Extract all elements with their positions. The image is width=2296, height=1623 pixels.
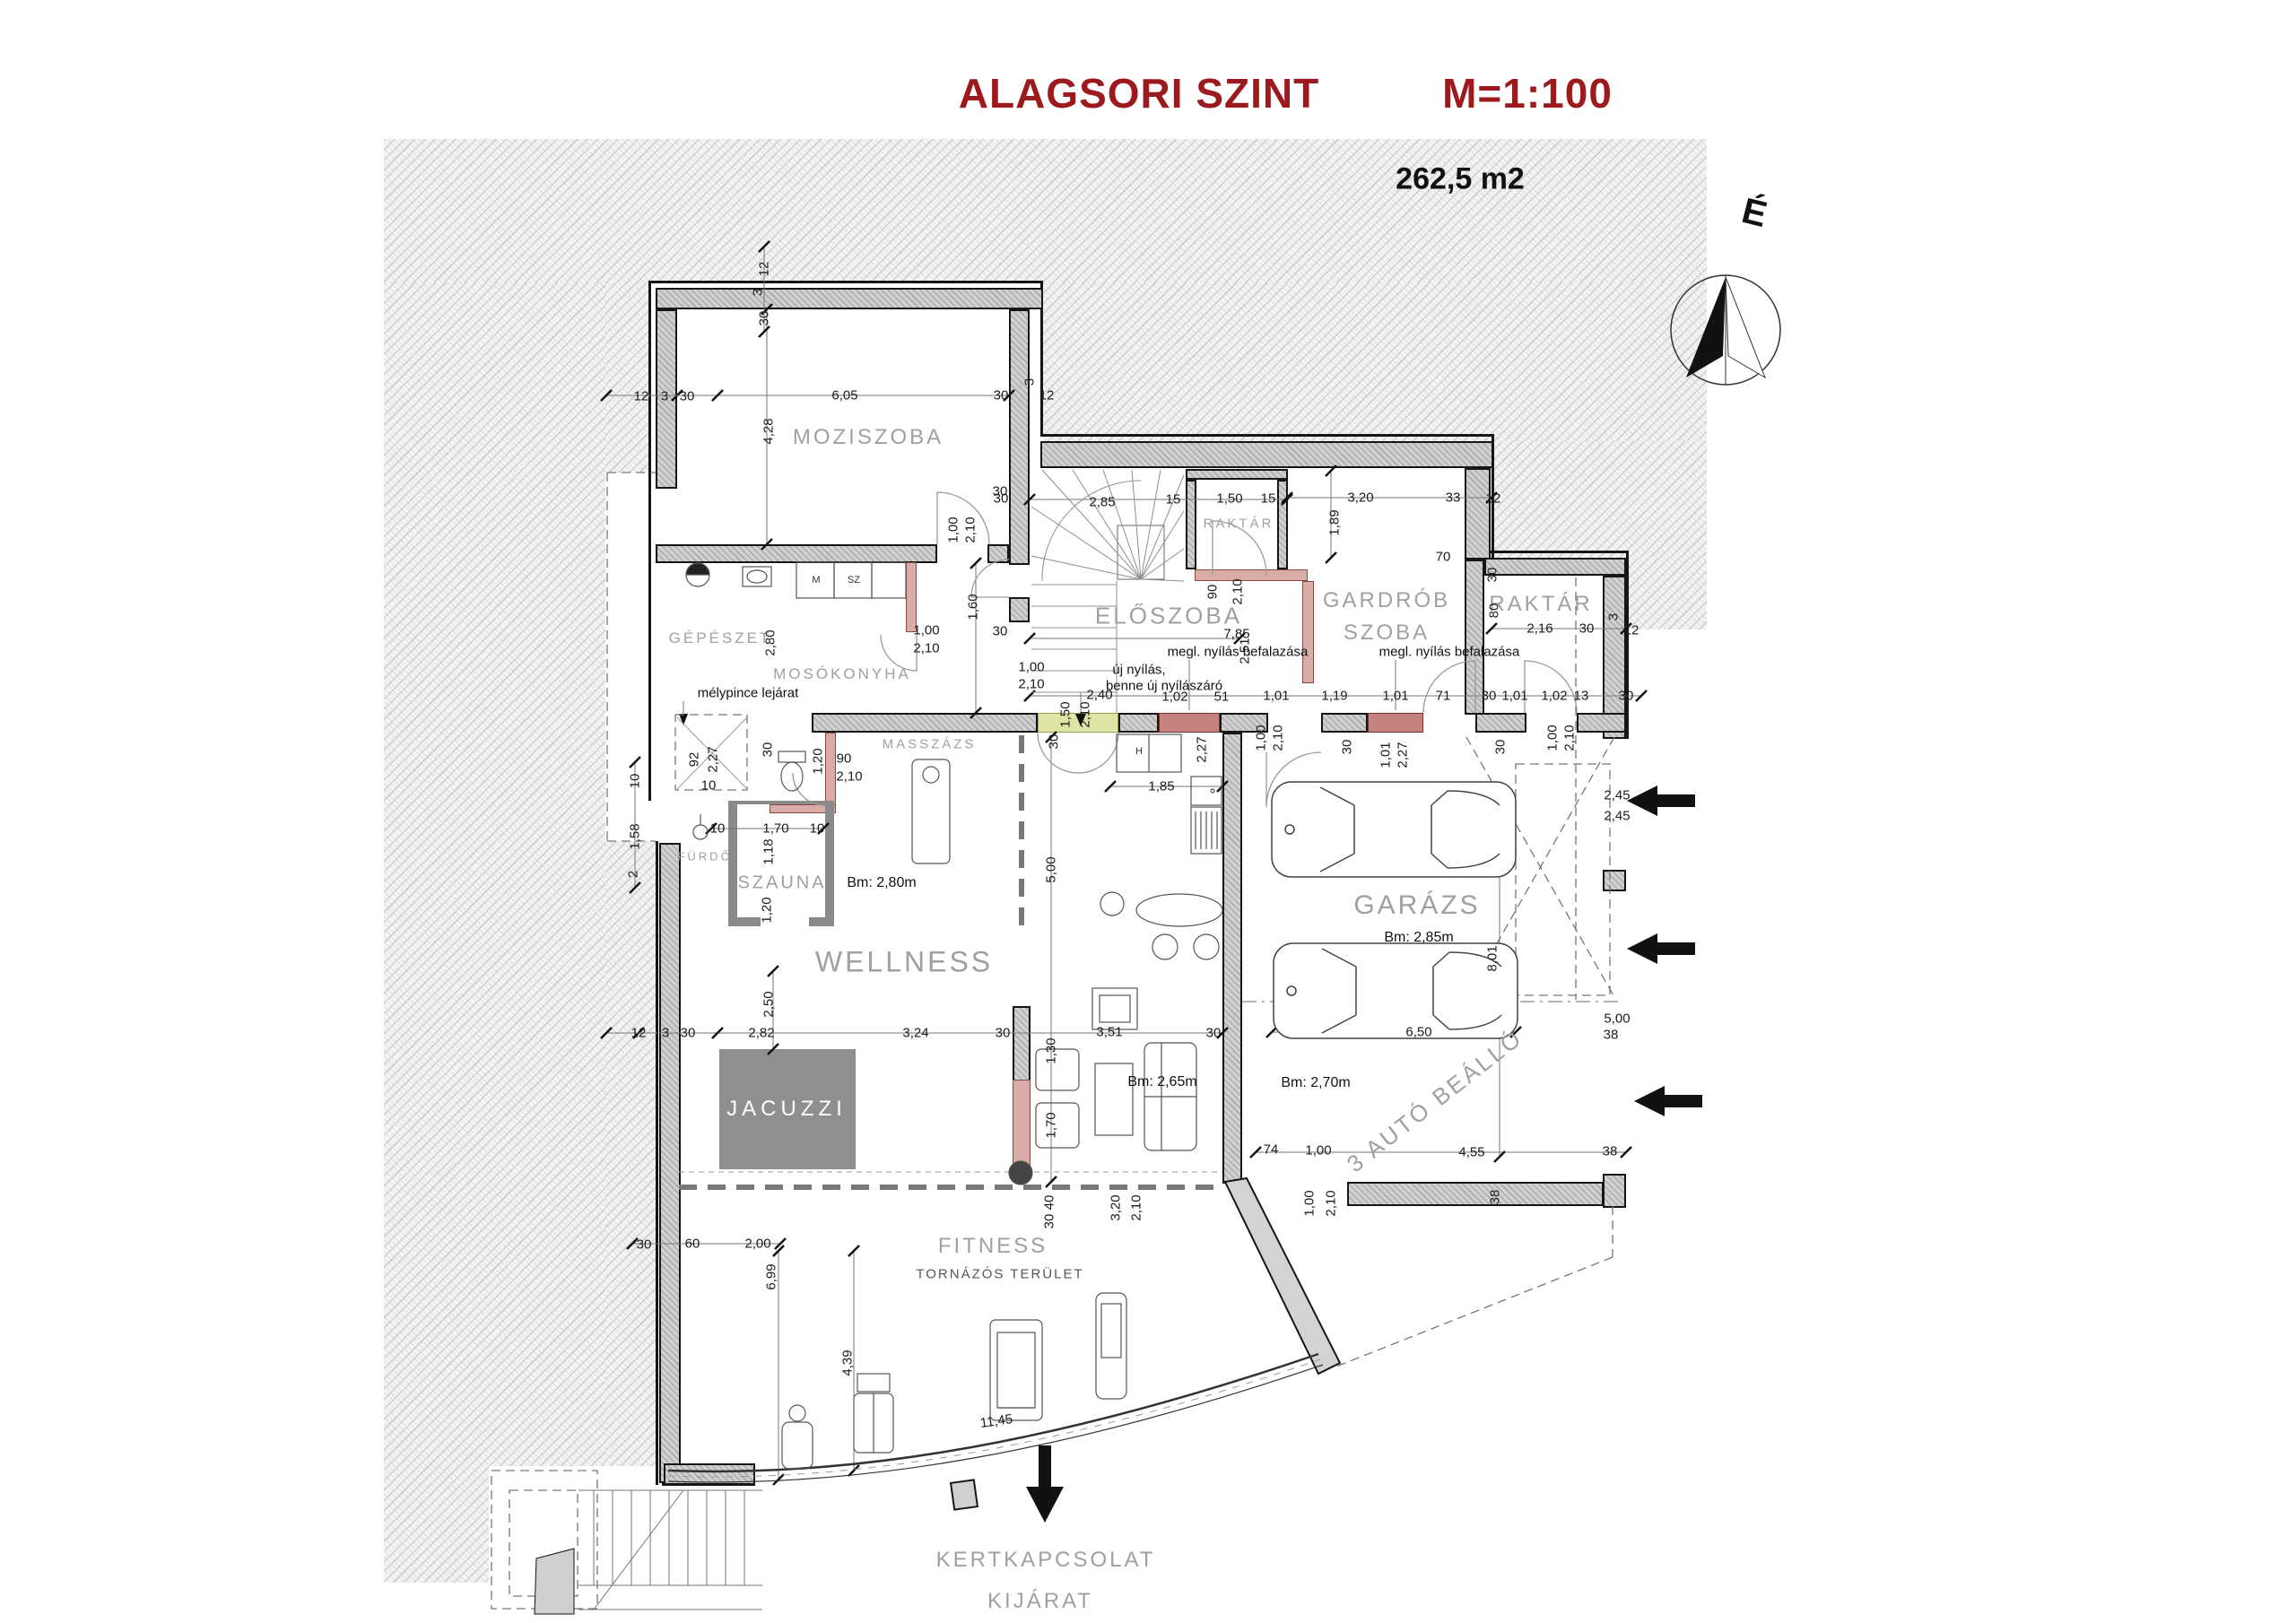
car-top-view [1274,943,1518,1038]
room-label-wellness: WELLNESS [815,946,993,979]
dim-label-1-00: 1,00 [1305,1143,1331,1159]
sm-label-sz: SZ [848,575,860,586]
dim-label-80: 80 [1487,603,1502,619]
dim-label-3-51: 3,51 [1096,1025,1122,1040]
dim-label-12: 12 [1486,491,1501,507]
dim-label-30: 30 [637,1237,652,1253]
dim-label-1-00: 1,00 [1018,660,1044,675]
floor-plan-canvas: ALAGSORI SZINTM=1:100262,5 m2ÉMOZISZOBAR… [0,0,2296,1623]
dim-label-2-10: 2,10 [836,769,862,785]
dim-label-12: 12 [1624,623,1639,638]
dim-label-1-19: 1,19 [1321,689,1347,704]
dim-label-90: 90 [1205,585,1221,600]
dim-label-15: 15 [1166,492,1181,508]
dim-label-40: 40 [1042,1195,1057,1211]
bm-label-bm-2-85m: Bm: 2,85m [1384,930,1453,946]
dim-label-2-45: 2,45 [1604,788,1630,803]
dim-label-8-01: 8,01 [1485,945,1500,971]
dim-label-10: 10 [701,778,717,794]
dim-label-10: 10 [628,774,643,789]
dim-label-6-05: 6,05 [831,388,857,404]
dim-label-15: 15 [1261,491,1276,507]
dim-label-33: 33 [1446,490,1461,506]
dim-label-30: 30 [757,311,772,326]
dim-label-2-10: 2,10 [1231,578,1246,604]
room-label-fitness: FITNESS [938,1234,1048,1259]
dim-label-1-01: 1,01 [1263,689,1289,704]
dim-label-12: 12 [634,389,649,404]
dim-label-1-01: 1,01 [1378,742,1394,768]
room-label-garázs: GARÁZS [1353,890,1480,921]
dim-label-30: 30 [761,742,776,758]
dim-label-30: 30 [1493,740,1509,755]
room-label-előszoba: ELŐSZOBA [1095,603,1242,630]
dim-label-2-85: 2,85 [1089,495,1115,510]
dim-label-2-27: 2,27 [1195,736,1210,762]
facade-column [951,1480,978,1509]
dim-label-12: 12 [757,262,772,277]
dim-label-1-58: 1,58 [628,823,643,849]
dim-label-2: 2 [626,871,641,878]
dim-label-2-27: 2,27 [1396,742,1411,768]
dim-label-3-24: 3,24 [902,1026,928,1041]
room-label-raktár: RAKTÁR [1489,592,1592,617]
dim-label-2-45: 2,45 [1604,809,1630,824]
room-label-kijárat: KIJÁRAT [987,1589,1093,1614]
dim-label-30: 30 [680,389,695,404]
dim-label-4-55: 4,55 [1458,1145,1484,1160]
entry-arrow-icon [1627,785,1695,816]
dim-label-30: 30 [1619,689,1634,704]
dim-label-3-20: 3,20 [1109,1194,1124,1220]
dim-label-2-10: 2,10 [963,516,978,542]
dim-label-1-02: 1,02 [1541,689,1567,704]
dim-label-2-50: 2,50 [761,991,777,1017]
dim-label-1-50: 1,50 [1216,491,1242,507]
bm-label-bm-2-65m: Bm: 2,65m [1127,1074,1196,1090]
dim-label-38: 38 [1488,1190,1503,1205]
dim-label-1-01: 1,01 [1382,689,1408,704]
dim-label-4-39: 4,39 [840,1350,856,1376]
dim-label-30: 30 [1042,1214,1057,1229]
dim-label-6-50: 6,50 [1405,1025,1431,1040]
sm-label-m: M [812,575,820,586]
dim-label-1-00: 1,00 [946,516,961,542]
dim-label-2-00: 2,00 [744,1237,770,1252]
dim-label-6-99: 6,99 [764,1263,779,1289]
dim-label-30: 30 [1485,568,1500,583]
room-label-moziszoba: MOZISZOBA [793,425,944,450]
dim-label-1-00: 1,00 [1254,725,1269,751]
dim-label-5-00: 5,00 [1044,856,1059,882]
bm-label-bm-2-70m: Bm: 2,70m [1281,1075,1350,1091]
dim-label-3-20: 3,20 [1347,490,1373,506]
dim-label-1-00: 1,00 [1302,1190,1318,1216]
dim-label-1-01: 1,01 [1501,689,1527,704]
dim-label-1-85: 1,85 [1148,779,1174,794]
dim-label-30: 30 [1579,621,1595,637]
dim-label-2-10: 2,10 [1129,1194,1144,1220]
rm2-label-tornázós-terület: TORNÁZÓS TERÜLET [916,1267,1083,1282]
dim-label-1-50: 1,50 [1058,701,1074,727]
dim-label-1-70: 1,70 [1044,1112,1059,1138]
dim-label-30: 30 [1482,689,1497,704]
dim-label-2-51: 2,51 [1238,638,1253,664]
north-compass-icon [1671,275,1780,385]
dim-label-1-00: 1,00 [913,623,939,638]
dim-label-12: 12 [631,1026,647,1041]
room-label-kertkapcsolat: KERTKAPCSOLAT [936,1548,1156,1573]
room-label-szauna: SZAUNA [737,873,826,894]
dim-label-13: 13 [1574,689,1589,704]
dim-label-70: 70 [1436,550,1451,565]
dim-label-1-20: 1,20 [811,748,826,774]
dim-label-38: 38 [1604,1028,1619,1043]
dim-label-1-89: 1,89 [1327,509,1343,535]
dim-label-1-20: 1,20 [760,897,775,923]
ttl-label-m-1-100: M=1:100 [1442,69,1613,117]
garden-exit-arrow-icon [1026,1445,1064,1523]
dim-label-3: 3 [1022,378,1038,386]
dim-label-60: 60 [685,1237,700,1252]
dim-label-1-02: 1,02 [1161,690,1187,705]
dim-label-12: 12 [1039,388,1055,404]
dim-label-30: 30 [996,1026,1011,1041]
dim-label-30: 30 [681,1026,696,1041]
dim-label-90: 90 [837,751,852,767]
dim-label-30: 30 [1047,734,1062,750]
dim-label-30: 30 [993,484,1008,499]
dim-label-1-70: 1,70 [762,821,788,837]
dim-label-71: 71 [1436,689,1451,704]
dim-label-1-60: 1,60 [966,594,981,620]
dim-label-2-10: 2,10 [1271,725,1286,751]
room-label-raktár: RAKTÁR [1204,516,1274,532]
dim-label-2-27: 2,27 [706,746,721,772]
dim-label-1-30: 1,30 [1044,1037,1059,1063]
dim-label-3: 3 [1606,613,1622,621]
dim-label-1-18: 1,18 [761,838,777,864]
glass-facade-curve [668,1354,1318,1471]
dim-label-30: 30 [994,388,1009,404]
dim-label-38: 38 [1603,1144,1618,1159]
entry-arrow-icon [1627,933,1695,964]
room-label-gépészet: GÉPÉSZET [669,629,772,647]
dim-label-74: 74 [1264,1142,1279,1158]
dim-label-5-00: 5,00 [1604,1011,1630,1027]
dim-label-30: 30 [993,624,1008,639]
dim-label-2-82: 2,82 [748,1026,774,1041]
dim-label-2-80: 2,80 [763,629,778,655]
dim-label-92: 92 [687,752,702,768]
dim-label-2-10: 2,10 [1018,677,1044,692]
dim-label-3: 3 [751,289,766,296]
dim-label-2-16: 2,16 [1526,621,1552,637]
bm-label-bm-2-80m: Bm: 2,80m [847,875,916,891]
dim-label-3: 3 [661,389,668,404]
plan-linework [0,0,2296,1623]
dim-label-10: 10 [810,821,825,837]
ttl-label-alagsori-szint: ALAGSORI SZINT [959,69,1319,117]
dim-label-3: 3 [662,1026,669,1041]
room-label-gardrób: GARDRÓB [1323,588,1450,613]
dim-label-2-10: 2,10 [913,641,939,656]
dim-label-2-10: 2,10 [1562,725,1578,751]
car-top-view [1272,782,1516,877]
ann-label-mélypince-lejárat: mélypince lejárat [698,686,799,701]
room-label-fürdő: FÜRDŐ [677,850,732,864]
dim-label-30: 30 [1206,1026,1222,1041]
dim-label-4-28: 4,28 [761,418,777,444]
room-label-mosókonyha: MOSÓKONYHA [773,665,911,683]
dim-label-1-00: 1,00 [1545,725,1561,751]
dim-label-10: 10 [710,821,726,837]
dim-label-2-40: 2,40 [1086,688,1112,703]
dim-label-30: 30 [1340,740,1355,755]
dim-label-2-10: 2,10 [1078,701,1093,727]
dim-label-2-10: 2,10 [1324,1190,1339,1216]
area-label-262-5-m2: 262,5 m2 [1396,162,1525,197]
room-label-szoba: SZOBA [1344,621,1430,646]
room-label-masszázs: MASSZÁZS [883,737,977,752]
room-label-jacuzzi: JACUZZI [726,1097,847,1122]
dim-label-51: 51 [1214,690,1230,705]
exterior-stairs [535,1490,762,1614]
ann-label-új-nyílás-: új nyílás, [1112,663,1165,678]
sm-label-h: H [1135,746,1143,757]
ann-label-megl-nyílás-befalazása: megl. nyílás befalazása [1379,645,1520,660]
entry-arrow-icon [1634,1086,1702,1116]
